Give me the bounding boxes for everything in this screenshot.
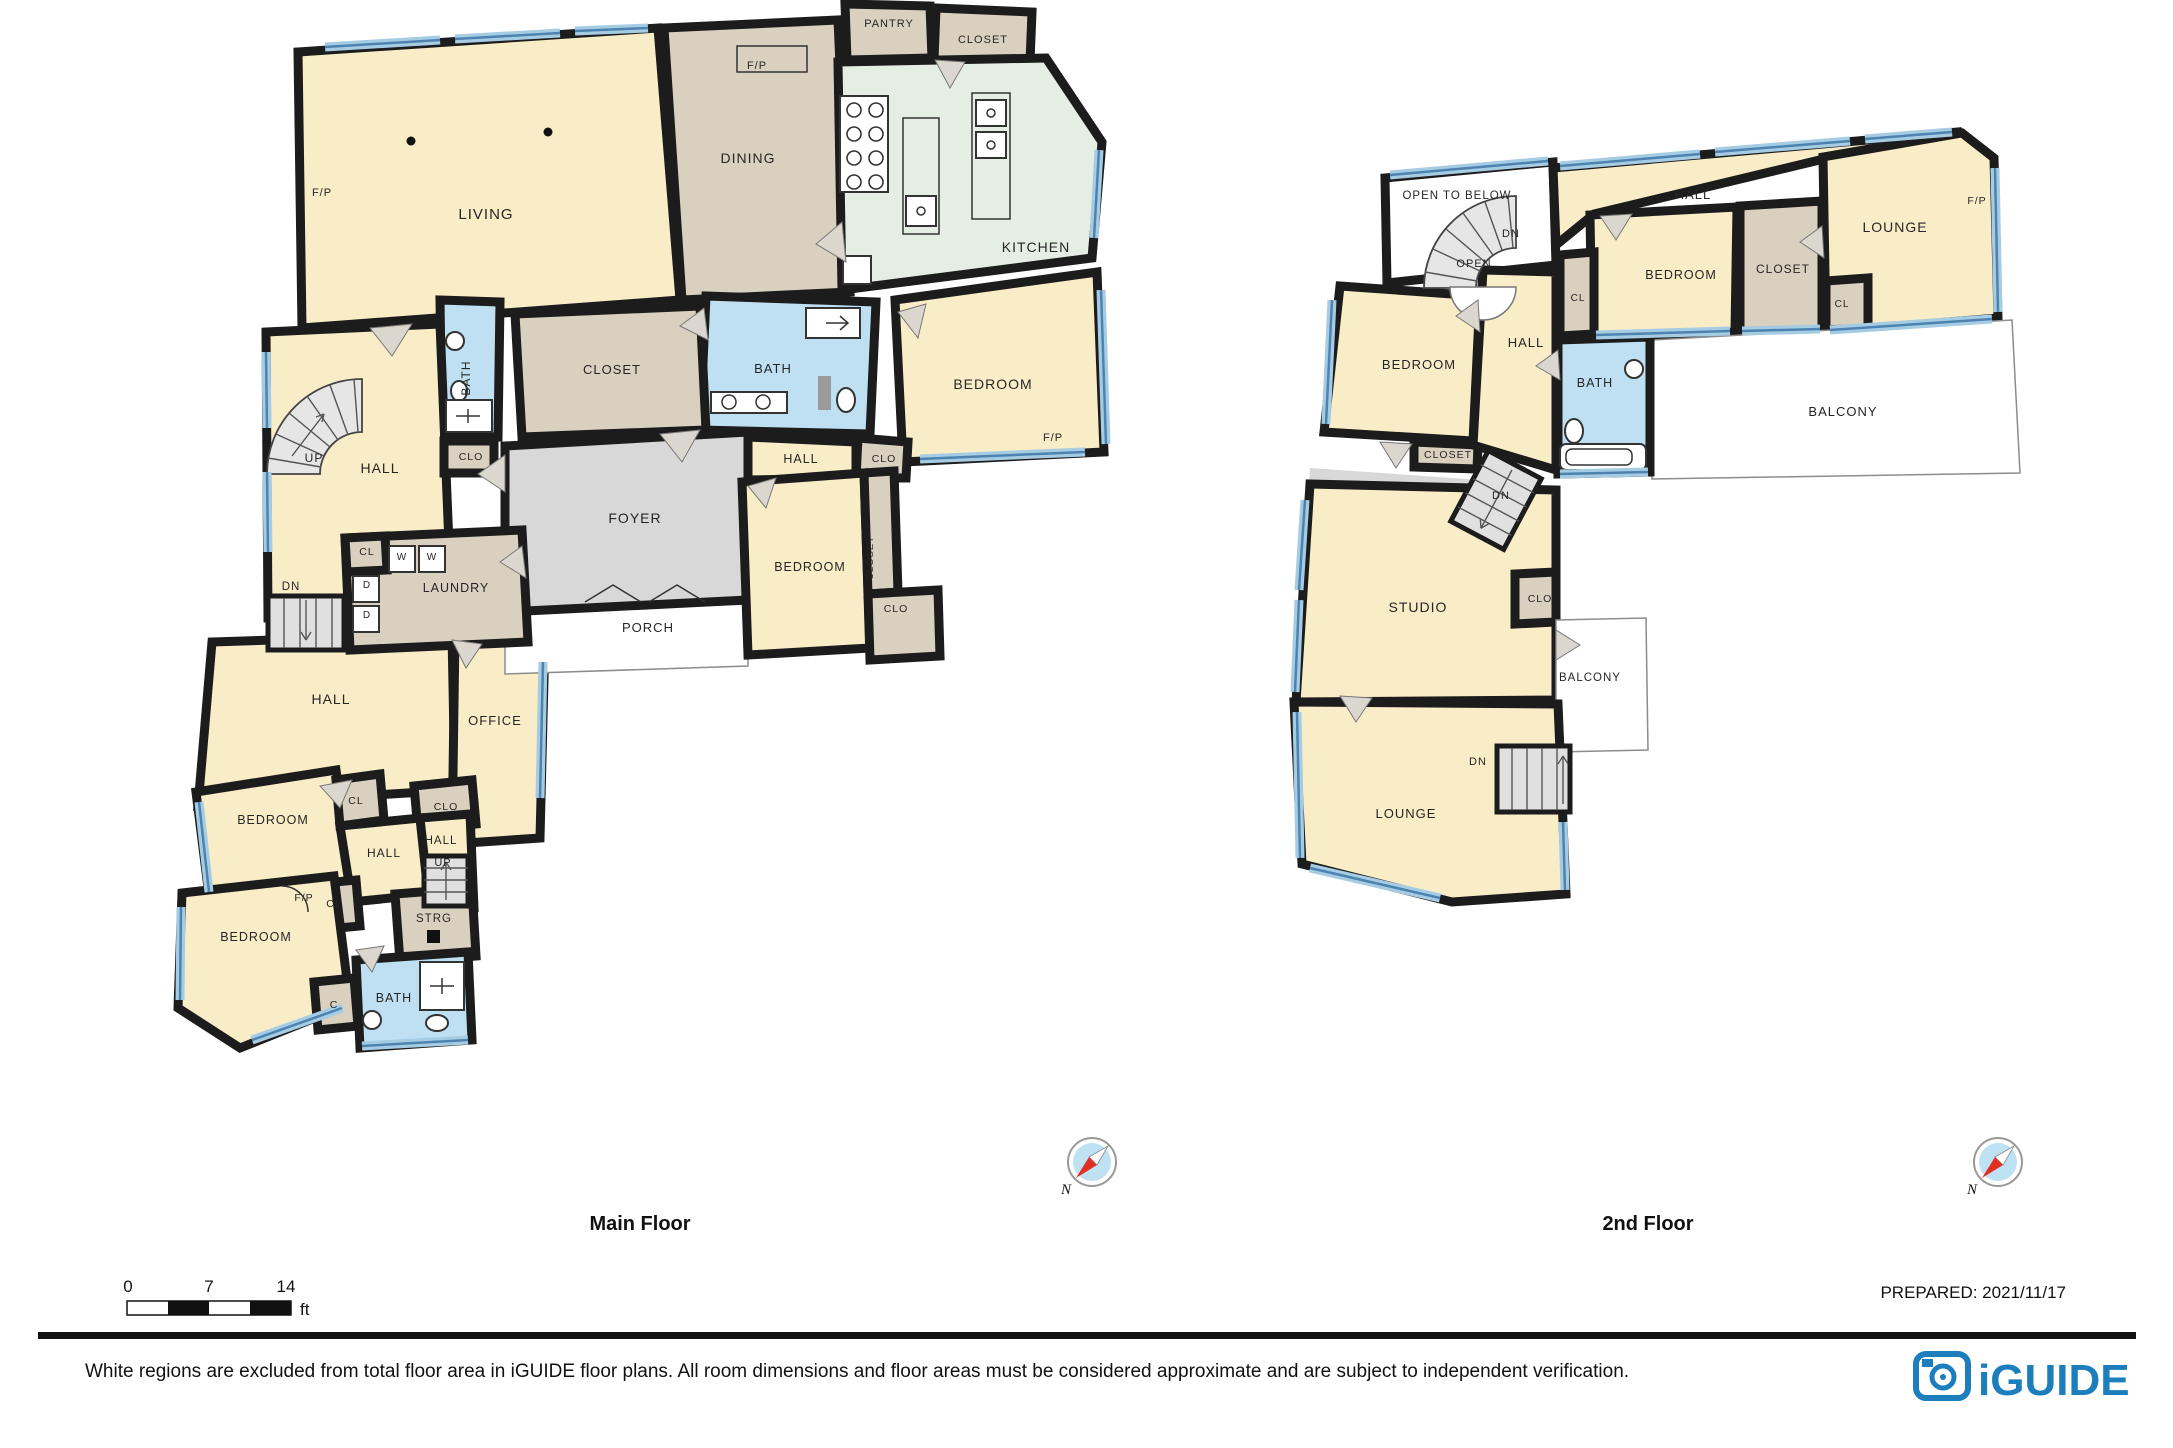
room-label-dn: DN [1492,490,1510,502]
room-label-w: W [397,552,407,563]
room-label-cl: CL [326,898,341,910]
room-label-clo: CLO [872,453,897,465]
main-floor-title: Main Floor [589,1213,690,1235]
room-label-hall: HALL [367,846,401,860]
kitchen-sink-1 [906,196,936,226]
logo-camera-lens-dot [1940,1374,1946,1380]
room-pantry [845,4,932,60]
scale-tick-14: 14 [277,1277,296,1296]
room-label-laundry: LAUNDRY [423,581,490,595]
room-label-f-p: F/P [747,60,767,72]
room-label-balcony: BALCONY [1559,672,1621,684]
room-label-bath: BATH [754,361,792,376]
room-label-cl: CL [359,546,374,558]
strg-post [427,930,440,943]
room-label-hall: HALL [783,452,818,466]
room-label-cl: CL [1835,299,1850,310]
room-label-hall: HALL [311,691,350,707]
kitchen-sink-2 [976,100,1006,126]
room-label-studio: STUDIO [1389,599,1448,615]
floorplan-canvas: LIVINGF/PDININGF/PPANTRYCLOSETKITCHENBED… [0,0,2173,1448]
room-label-closet: CLOSET [1756,262,1810,276]
room-label-f-p: F/P [294,892,313,904]
room-label-strg: STRG [416,913,452,925]
bath-ll-toilet [426,1015,448,1031]
kitchen-sink-3 [976,132,1006,158]
room-label-closet: CLOSET [865,536,876,580]
ceiling-dot [544,128,553,137]
room-label-bath: BATH [376,991,412,1005]
room-label-hall: HALL [1508,335,1545,350]
room-label-f-p: F/P [1967,195,1986,207]
room-label-bedroom: BEDROOM [953,376,1032,392]
room-label-hall: HALL [1675,187,1712,202]
room-label-w: W [427,552,437,563]
room-label-dn: DN [1469,756,1487,768]
room-label-clo: CLO [459,451,484,463]
disclaimer-text: White regions are excluded from total fl… [85,1361,1629,1382]
room-label-hall: HALL [425,835,458,847]
room-label-bath: BATH [1577,376,1613,390]
logo-text: iGUIDE [1978,1356,2130,1405]
room-label-open: OPEN [1456,258,1491,270]
room-label-closet: CLOSET [1424,449,1472,461]
room-label-clo: CLO [884,603,909,615]
room-label-cl: CL [348,795,363,807]
room-label-closet: CLOSET [583,362,641,377]
bath-main-toilet [837,388,855,412]
compass-n-label: N [1966,1182,1978,1198]
room-label-c: C [330,999,339,1011]
bath-2f-toilet-top [1625,360,1643,378]
room-label-living: LIVING [458,206,513,223]
room-label-foyer: FOYER [608,510,661,526]
room-label-d: D [363,610,371,621]
room-label-porch: PORCH [622,620,674,635]
room-label-f-p: F/P [1043,432,1063,444]
scale-bar-seg [168,1301,209,1315]
logo-camera-viewfinder [1922,1359,1933,1367]
room-label-hall: HALL [360,460,399,476]
room-label-closet: CLOSET [958,34,1008,46]
room-label-clo: CLO [434,801,459,813]
room-label-clo: CLO [1528,593,1553,605]
room-living [298,28,680,328]
room-label-d: D [363,580,371,591]
scale-tick-0: 0 [123,1277,132,1296]
room-label-lounge: LOUNGE [1376,806,1437,821]
room-label-dn: DN [282,581,301,593]
compass-n-label: N [1060,1182,1072,1198]
room-label-dn: DN [1502,228,1520,240]
kitchen-appliance [843,256,871,284]
room-label-bedroom: BEDROOM [1645,268,1717,282]
room-label-balcony: BALCONY [1808,404,1877,419]
room-label-up: UP [305,451,324,465]
scale-bar-seg [250,1301,291,1315]
bath-small-sink [446,332,464,350]
room-label-kitchen: KITCHEN [1002,239,1070,255]
scale-unit: ft [300,1300,310,1319]
second-floor-title: 2nd Floor [1602,1213,1693,1235]
room-clo-mid [868,590,940,660]
room-label-office: OFFICE [468,713,522,728]
bath-ll-sink [363,1011,381,1029]
room-label-open-to-below: OPEN TO BELOW [1402,190,1511,202]
room-label-lounge: LOUNGE [1862,219,1927,235]
bath-main-partition [818,376,831,410]
room-label-up: UP [434,857,451,869]
bath-2f-toilet [1565,419,1583,443]
room-label-bedroom: BEDROOM [220,930,292,944]
lounge-stair-dn [1497,746,1570,812]
bath-2f-tub [1560,444,1646,470]
room-label-cl: CL [1571,293,1586,304]
room-label-bedroom: BEDROOM [774,560,846,574]
room-label-bedroom: BEDROOM [1382,357,1456,372]
balcony-large [1652,320,2020,479]
footer-rule [38,1332,2136,1339]
scale-tick-7: 7 [204,1277,213,1296]
room-label-bedroom: BEDROOM [237,813,309,827]
room-label-dining: DINING [721,150,776,166]
ceiling-dot [407,137,416,146]
room-bedroom-right [895,272,1104,462]
prepared-date: PREPARED: 2021/11/17 [1880,1283,2066,1302]
room-label-bath: BATH [459,360,473,395]
room-label-pantry: PANTRY [864,18,914,30]
room-label-f-p: F/P [312,187,332,199]
